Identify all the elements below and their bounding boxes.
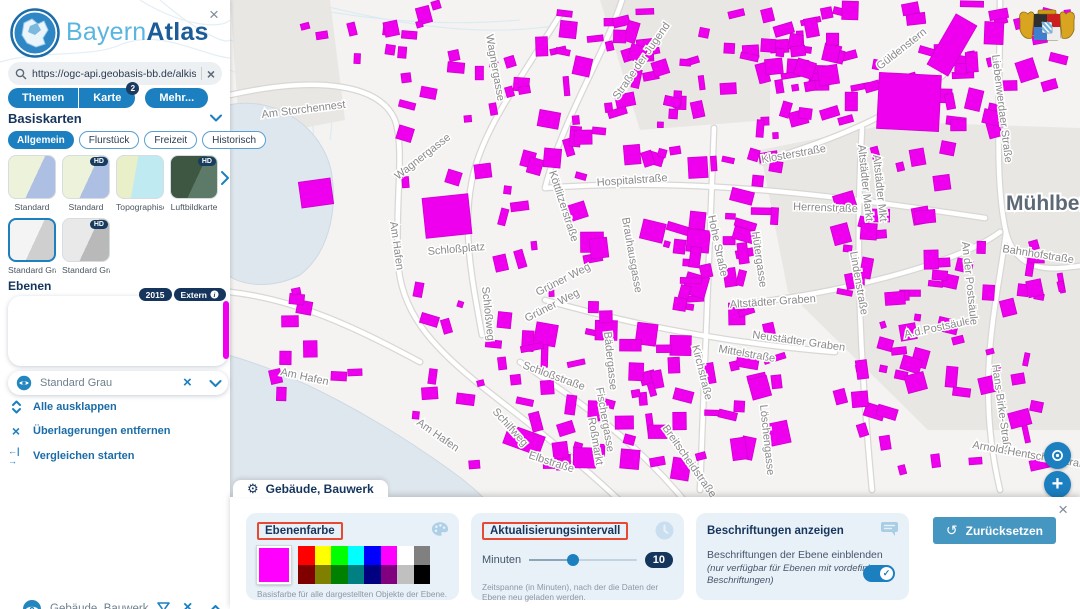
refresh-interval-card: Aktualisierungsintervall Minuten 10 Zeit… [471, 513, 684, 600]
expand-all-link[interactable]: Alle ausklappen [8, 400, 117, 414]
layer-color-card: Ebenenfarbe Basisfarbe für alle dargeste… [246, 513, 459, 600]
building [771, 375, 782, 389]
street-label: Herrenstraße [793, 201, 858, 215]
basemap-thumb-label: Luftbildkarte [170, 202, 218, 212]
building [657, 148, 667, 158]
building [877, 72, 942, 131]
building [457, 301, 464, 308]
palette-color-000000[interactable] [414, 565, 431, 584]
palette-color-00ffff[interactable] [348, 546, 365, 565]
remove-overlays-icon: × [8, 423, 24, 439]
building [698, 27, 709, 38]
layers-heading: Ebenen [8, 279, 51, 293]
building [891, 347, 907, 356]
nav-mehr-button[interactable]: Mehr... [145, 88, 208, 108]
building [928, 280, 943, 287]
building [952, 387, 970, 398]
layer-visibility-icon[interactable] [22, 599, 42, 609]
building [756, 120, 764, 138]
place-label-muehlberg: Mühlberg [1006, 192, 1080, 215]
interval-card-caption: Zeitspanne (in Minuten), nach der die Da… [482, 582, 673, 603]
building [826, 33, 838, 45]
building [1030, 400, 1044, 412]
building [510, 201, 529, 212]
basemap-category-tabs: Allgemein Flurstück Freizeit Historisch [8, 131, 266, 149]
building [730, 437, 747, 461]
building [845, 92, 857, 111]
building [955, 64, 967, 74]
building [720, 83, 737, 95]
layer-color-strip [223, 301, 229, 359]
building [761, 39, 776, 53]
building [477, 380, 485, 387]
building [680, 59, 691, 66]
basemap-thumb-5[interactable]: HDStandard Grau [62, 218, 110, 275]
basemap-thumb-label: Standard [62, 202, 110, 212]
building [489, 103, 498, 116]
building [298, 178, 333, 208]
building [982, 285, 994, 301]
building [572, 56, 593, 77]
search-clear-icon[interactable]: × [207, 67, 215, 81]
labels-toggle-check-icon: ✓ [880, 567, 893, 580]
building [673, 239, 686, 254]
building [605, 41, 614, 51]
layer-filter-icon[interactable] [156, 601, 171, 609]
building [705, 410, 719, 416]
settings-tab-title: Gebäude, Bauwerk [266, 482, 374, 496]
building [931, 454, 941, 468]
reset-label: Zurücksetzen [966, 524, 1043, 538]
remove-overlays-link[interactable]: × Überlagerungen entfernen [8, 423, 171, 439]
building [398, 47, 407, 59]
search-divider [201, 67, 202, 80]
building [951, 120, 966, 131]
layer2-remove-icon[interactable]: × [183, 374, 192, 391]
svg-text:i: i [214, 292, 216, 299]
comment-icon [880, 521, 899, 537]
tab-freizeit[interactable]: Freizeit [144, 131, 197, 149]
building [751, 208, 771, 215]
building [885, 291, 906, 305]
palette-color-800000[interactable] [298, 565, 315, 584]
building [289, 293, 305, 305]
layer-name: Gebäude, Bauwerk [50, 603, 148, 609]
building [587, 35, 603, 43]
basemap-thumb-3[interactable]: HDLuftbildkarte [170, 155, 218, 212]
building [540, 380, 554, 394]
building [932, 270, 948, 281]
basemap-thumb-label: Topographisch [116, 202, 164, 212]
palette-color-000080[interactable] [364, 565, 381, 584]
building [876, 230, 887, 239]
nav-karte-button[interactable]: Karte 2 [79, 88, 135, 108]
building [383, 20, 400, 37]
basemap-thumb-image [8, 218, 56, 262]
app-title-bold: Atlas [146, 18, 208, 46]
building [447, 62, 465, 74]
building [790, 45, 805, 57]
building [1011, 373, 1025, 385]
building [724, 43, 735, 54]
building [631, 389, 640, 398]
palette-color-ffffff[interactable] [397, 546, 414, 565]
basemap-thumb-image: HD [62, 155, 110, 199]
building [1026, 279, 1044, 298]
building [673, 412, 687, 429]
layer-year-badge: 2015 [139, 288, 172, 301]
building [817, 64, 840, 86]
building [668, 357, 680, 373]
building [734, 401, 745, 412]
building [469, 460, 480, 469]
interval-card-title: Aktualisierungsintervall [482, 522, 628, 540]
building [557, 10, 573, 18]
building [422, 194, 472, 239]
basemap-thumb-0[interactable]: Standard [8, 155, 56, 212]
building [280, 351, 292, 365]
settings-panel-close-icon[interactable]: × [1058, 500, 1068, 520]
bavaria-coat-of-arms [1020, 10, 1075, 40]
tab-historisch[interactable]: Historisch [202, 131, 266, 149]
building [761, 8, 775, 23]
building [510, 374, 521, 385]
building [770, 208, 778, 225]
color-card-title: Ebenenfarbe [257, 522, 343, 540]
bayernatlas-logo [10, 8, 60, 58]
building [775, 79, 784, 93]
karte-count-badge: 2 [126, 82, 139, 95]
basemap-thumb-image [116, 155, 164, 199]
building [354, 54, 361, 64]
tab-allgemein[interactable]: Allgemein [8, 131, 74, 149]
building [656, 345, 671, 353]
building [503, 186, 511, 195]
building [669, 109, 678, 119]
building [316, 31, 328, 40]
palette-color-808000[interactable] [315, 565, 332, 584]
building [791, 84, 798, 91]
palette-color-c0c0c0[interactable] [397, 565, 414, 584]
basemap-thumb-label: Standard [8, 202, 56, 212]
building [977, 241, 986, 253]
layer-extern-label: Extern [181, 290, 207, 300]
building [559, 20, 577, 38]
basemaps-heading: Basiskarten [8, 111, 82, 126]
layer2-expand-icon[interactable] [209, 379, 222, 388]
palette-icon [431, 521, 449, 537]
building [401, 30, 417, 39]
building [629, 363, 644, 381]
layer2-visibility-icon[interactable] [16, 375, 32, 391]
building [456, 393, 475, 406]
building [421, 387, 438, 400]
building [914, 209, 936, 224]
nav-themen-button[interactable]: Themen [8, 88, 79, 108]
layer-badges: 2015 Extern i [139, 288, 226, 301]
building [945, 366, 958, 387]
tab-flurstueck[interactable]: Flurstück [79, 131, 140, 149]
extern-info-icon[interactable]: i [210, 290, 219, 299]
nav-karte-label: Karte [93, 92, 121, 104]
locate-button[interactable] [1044, 442, 1071, 469]
building [914, 314, 921, 321]
color-palette [298, 546, 430, 584]
main-nav: Themen Karte 2 Mehr... [8, 88, 208, 108]
interval-value-badge: 10 [645, 552, 673, 568]
interval-slider-row: Minuten 10 [482, 552, 673, 568]
building [448, 50, 460, 62]
building [924, 250, 939, 269]
app-title: BayernAtlas [66, 18, 209, 47]
building [688, 157, 708, 179]
basemap-thumb-1[interactable]: HDStandard [62, 155, 110, 212]
building [282, 316, 299, 327]
building [879, 435, 891, 450]
interval-unit-label: Minuten [482, 554, 521, 566]
building [940, 141, 956, 156]
palette-color-0000ff[interactable] [364, 546, 381, 565]
color-card-caption: Basisfarbe für alle dargestellten Objekt… [257, 589, 448, 599]
building [599, 311, 612, 323]
building [615, 416, 633, 429]
layer-card-gebaeude-bauwerk: 2015 Extern i Gebäude, Bauwerk × [8, 296, 228, 366]
building [613, 30, 626, 43]
building [879, 365, 887, 373]
building [636, 8, 654, 14]
building [588, 301, 598, 312]
building [657, 122, 663, 128]
interval-slider-thumb[interactable] [567, 554, 579, 566]
building [804, 81, 816, 92]
building [663, 241, 670, 248]
building [572, 116, 579, 125]
building [537, 109, 561, 129]
palette-color-ff00ff[interactable] [381, 546, 398, 565]
building [673, 297, 687, 311]
labels-toggle[interactable]: ✓ [863, 565, 895, 582]
layer2-name: Standard Grau [40, 377, 112, 389]
building [699, 263, 713, 278]
bayernatlas-app: Am StorchennestWagnergasseWagnergasseStr… [0, 0, 1080, 609]
palette-color-800080[interactable] [381, 565, 398, 584]
layer-extern-badge: Extern i [174, 288, 226, 301]
color-picker [257, 546, 448, 584]
hd-badge: HD [90, 220, 108, 229]
palette-color-008000[interactable] [331, 565, 348, 584]
building [497, 312, 512, 329]
building [331, 371, 347, 381]
building [896, 162, 905, 172]
search-input[interactable] [32, 68, 196, 80]
palette-color-ff0000[interactable] [298, 546, 315, 565]
building [969, 457, 982, 465]
building [303, 341, 317, 358]
palette-color-00ff00[interactable] [331, 546, 348, 565]
labels-toggle-text: Beschriftungen der Ebene einblenden [707, 549, 898, 563]
building [276, 387, 286, 401]
zoom-in-button[interactable]: + [1044, 471, 1071, 498]
selected-color-swatch[interactable] [257, 546, 291, 584]
building [475, 66, 483, 80]
palette-color-808080[interactable] [414, 546, 431, 565]
basemap-thumb-2[interactable]: Topographisch [116, 155, 164, 212]
labels-visibility-card: Beschriftungen anzeigen Beschriftungen d… [696, 513, 909, 600]
basemap-thumb-image [8, 155, 56, 199]
building [497, 357, 506, 370]
basemap-thumb-4[interactable]: Standard Grau [8, 218, 56, 275]
building [984, 22, 1004, 45]
layer-card-standard-grau: Standard Grau × [8, 371, 228, 395]
building [535, 37, 547, 57]
building [428, 369, 438, 385]
basemap-thumbs-row-2: Standard GrauHDStandard Grau [8, 218, 110, 275]
building [518, 85, 530, 94]
thumbs-next-icon[interactable] [220, 170, 230, 186]
labels-card-title: Beschriftungen anzeigen [707, 525, 844, 537]
reset-icon: ↺ [946, 522, 958, 539]
locate-icon [1050, 448, 1065, 463]
building [348, 369, 362, 376]
search-icon [15, 68, 27, 80]
layer-collapse-icon[interactable] [209, 604, 222, 609]
building [543, 148, 562, 168]
building [689, 211, 706, 230]
reset-button[interactable]: ↺ Zurücksetzen [933, 517, 1056, 544]
building [592, 127, 606, 135]
building [291, 287, 301, 295]
interval-slider[interactable] [529, 559, 637, 561]
building [531, 241, 537, 250]
basemap-thumb-label: Standard Grau [62, 265, 110, 275]
sidebar: × BayernAtlas × Themen Karte 2 [0, 0, 230, 609]
building [860, 223, 877, 240]
sidebar-close-icon[interactable]: × [209, 5, 219, 25]
expand-all-label: Alle ausklappen [33, 401, 117, 413]
building [851, 391, 868, 408]
building [909, 148, 926, 167]
building [764, 58, 783, 75]
expand-all-icon [8, 400, 24, 414]
building [680, 277, 701, 284]
building [710, 156, 717, 171]
palette-color-008080[interactable] [348, 565, 365, 584]
building [401, 73, 411, 83]
basemap-thumb-image: HD [170, 155, 218, 199]
building [855, 360, 868, 380]
basemap-thumb-image: HD [62, 218, 110, 262]
layer-remove-icon[interactable]: × [183, 599, 192, 609]
building [752, 175, 764, 187]
hd-badge: HD [198, 157, 216, 166]
basemap-thumbs-row-1: StandardHDStandardTopographischHDLuftbil… [8, 155, 218, 212]
building [385, 44, 396, 55]
building [689, 246, 702, 268]
remove-overlays-label: Überlagerungen entfernen [33, 425, 171, 437]
building [574, 130, 592, 144]
palette-color-ffff00[interactable] [315, 546, 332, 565]
building [686, 304, 694, 311]
building [464, 115, 472, 122]
interval-slider-fill [529, 559, 567, 561]
building [623, 144, 641, 165]
building [965, 52, 978, 73]
building [820, 7, 833, 20]
building [416, 21, 424, 28]
settings-tab-gear-icon: ⚙ [247, 481, 259, 497]
start-compare-label: Vergleichen starten [33, 450, 135, 462]
building [776, 48, 785, 57]
building [773, 132, 779, 138]
building [412, 411, 419, 419]
building [565, 395, 577, 415]
hd-badge: HD [90, 157, 108, 166]
building [589, 237, 609, 259]
compare-icon: ←|→ [8, 446, 24, 466]
building [842, 1, 859, 20]
basemaps-collapse-icon[interactable] [210, 114, 222, 122]
building [620, 449, 640, 470]
building [563, 76, 570, 95]
building [798, 107, 812, 119]
clock-icon [655, 521, 674, 540]
building [620, 339, 642, 351]
building [474, 163, 492, 179]
start-compare-link[interactable]: ←|→ Vergleichen starten [8, 446, 135, 466]
app-title-light: Bayern [66, 18, 146, 46]
search-bar[interactable]: × [8, 62, 222, 85]
settings-panel-tab[interactable]: ⚙ Gebäude, Bauwerk [233, 480, 388, 497]
layer-settings-panel: ⚙ Gebäude, Bauwerk × Ebenenfarbe Basisfa… [230, 497, 1080, 609]
building [725, 213, 735, 219]
building [960, 1, 983, 8]
building [669, 146, 681, 155]
building [933, 174, 951, 191]
building [670, 335, 691, 355]
basemap-thumb-label: Standard Grau [8, 265, 56, 275]
